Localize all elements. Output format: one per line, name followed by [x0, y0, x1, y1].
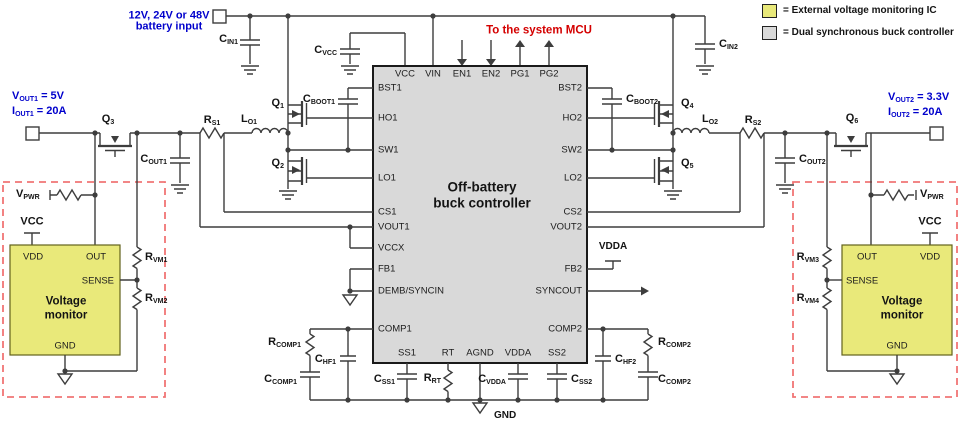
battery-input-terminal: [213, 10, 226, 23]
en1-arrow-icon: [457, 59, 467, 66]
ground-rail: [310, 363, 648, 413]
schematic-page: = External voltage monitoring IC = Dual …: [0, 0, 965, 426]
pg1-arrow-icon: [515, 40, 525, 47]
capacitor-cboot2: [587, 88, 622, 150]
q6-arrow-icon: [847, 136, 855, 143]
capacitor-cout1: [170, 133, 190, 193]
mosfet-q6: [834, 133, 868, 157]
vpwr-left-resistor: [50, 190, 95, 200]
q5-arrow-icon: [661, 166, 669, 174]
legend-label-external-ic: = External voltage monitoring IC: [783, 6, 937, 16]
capacitor-cin1: [240, 16, 260, 74]
q1-arrow-icon: [292, 110, 300, 118]
monitor-left-ground: [58, 355, 137, 384]
capacitor-cout2: [775, 133, 795, 193]
fb2-vdda-net: [587, 261, 621, 269]
vout2-sense-wire: [587, 133, 764, 227]
cs2-sense-wire: [587, 133, 740, 212]
capacitor-css1: [397, 363, 417, 400]
schematic-canvas: [0, 0, 965, 426]
vcc-left-supply-bar: [24, 233, 40, 245]
battery-input-rail: [213, 10, 705, 66]
resistor-rs1: [200, 128, 252, 138]
inductor-lo1: [252, 129, 288, 134]
mosfet-q3: [98, 133, 132, 157]
output-row-right: [764, 127, 943, 245]
syncout-arrow: [587, 287, 649, 296]
resistor-rrt: [444, 363, 452, 400]
capacitor-cboot1: [338, 88, 373, 150]
cs1-sense-wire: [224, 133, 373, 212]
vout2-terminal: [930, 127, 943, 140]
resistor-rs2: [740, 128, 764, 138]
resistors-rvm3-rvm4: [823, 133, 831, 371]
pg2-arrow-icon: [544, 40, 554, 47]
voltage-monitor-left: [10, 245, 120, 355]
resistors-rvm1-rvm2: [133, 133, 141, 371]
en2-arrow-icon: [486, 59, 496, 66]
comp2-network: [587, 329, 658, 400]
capacitor-css2: [547, 363, 567, 400]
inductor-lo2: [673, 129, 740, 134]
vout1-terminal: [26, 127, 39, 140]
output-row-left: [26, 127, 200, 245]
syncout-arrow-icon: [641, 287, 649, 296]
legend-swatch-external-ic: [762, 4, 777, 18]
mosfets-q4-q5: [587, 16, 682, 199]
comp1-network: [300, 329, 373, 400]
legend-label-buck-controller: = Dual synchronous buck controller: [783, 28, 954, 38]
capacitor-cin2: [695, 16, 715, 74]
vcc-right-supply-bar: [922, 233, 938, 245]
voltage-monitor-right: [842, 245, 952, 355]
monitor-right-ground: [827, 355, 904, 384]
q4-arrow-icon: [661, 110, 669, 118]
q3-arrow-icon: [111, 136, 119, 143]
legend-swatch-buck-controller: [762, 26, 777, 40]
fb1-demb-net: [343, 269, 373, 305]
capacitor-cvdda: [508, 363, 528, 400]
vpwr-right-resistor: [871, 190, 916, 200]
mosfets-q1-q2: [279, 16, 373, 199]
en-pg-signal-arrows: [457, 40, 554, 66]
buck-controller-ic: [373, 66, 587, 363]
q2-arrow-icon: [292, 166, 300, 174]
